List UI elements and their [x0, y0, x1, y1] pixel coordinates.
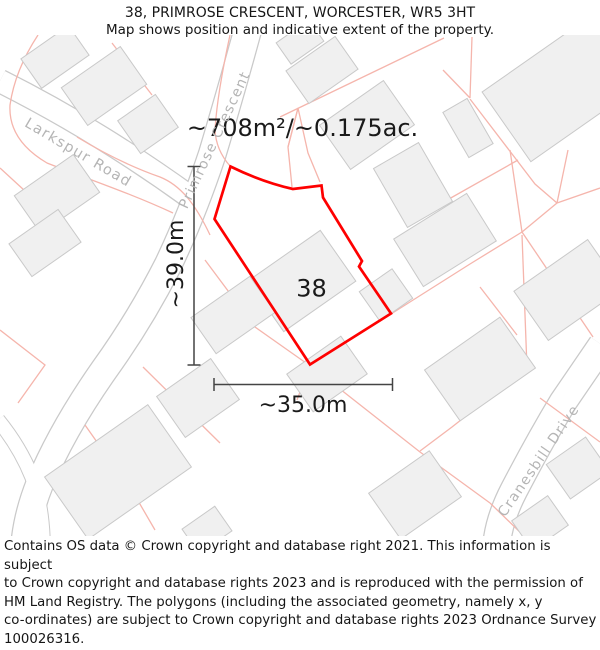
footer-line: HM Land Registry. The polygons (includin…: [4, 594, 600, 613]
property-map-page: 38, PRIMROSE CRESCENT, WORCESTER, WR5 3H…: [0, 0, 600, 625]
building: [482, 35, 600, 162]
map-svg: ~708m²/~0.175ac. 38 ~39.0m ~35.0m Larksp…: [0, 35, 600, 536]
width-dimension-label: ~35.0m: [259, 393, 348, 418]
building: [157, 359, 240, 438]
building: [182, 506, 232, 536]
footer-line: to Crown copyright and database rights 2…: [4, 575, 600, 594]
header: 38, PRIMROSE CRESCENT, WORCESTER, WR5 3H…: [0, 0, 600, 39]
height-dimension-label: ~39.0m: [164, 220, 189, 309]
building: [514, 240, 600, 341]
building: [369, 451, 462, 536]
footer-line: co-ordinates) are subject to Crown copyr…: [4, 612, 600, 631]
map-canvas: ~708m²/~0.175ac. 38 ~39.0m ~35.0m Larksp…: [0, 35, 600, 536]
building: [443, 98, 493, 157]
footer-line: Contains OS data © Crown copyright and d…: [4, 538, 600, 575]
footer-line: 100026316.: [4, 631, 600, 650]
page-title: 38, PRIMROSE CRESCENT, WORCESTER, WR5 3H…: [0, 0, 600, 22]
building: [9, 209, 81, 276]
building: [425, 317, 536, 421]
copyright-footer: Contains OS data © Crown copyright and d…: [0, 538, 600, 650]
plot-number-label: 38: [296, 275, 327, 303]
